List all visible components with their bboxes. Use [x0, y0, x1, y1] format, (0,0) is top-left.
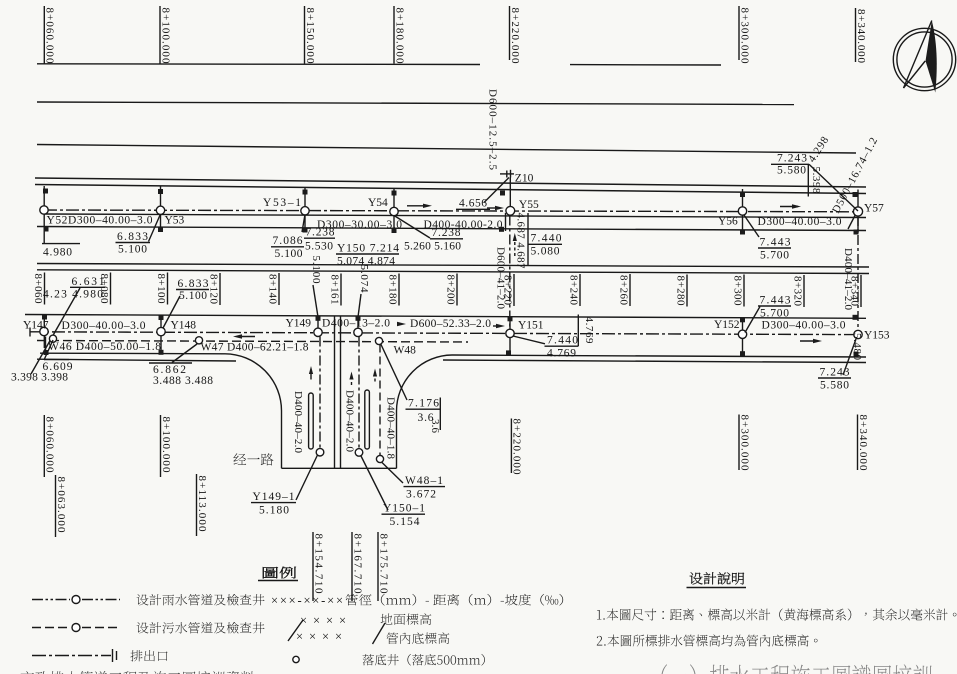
svg-text:D300–40.00–3.0: D300–40.00–3.0: [758, 216, 842, 228]
svg-text:8+300: 8+300: [732, 276, 744, 307]
svg-text:Y55: Y55: [519, 199, 539, 211]
svg-text:6.631: 6.631: [72, 276, 105, 288]
svg-text:5.700: 5.700: [760, 308, 789, 320]
svg-text:5.260 5.160: 5.260 5.160: [404, 241, 461, 253]
svg-text:D400–40–2.0: D400–40–2.0: [343, 390, 355, 453]
svg-text:×××-××-××: ×××-××-××: [271, 594, 343, 608]
svg-text:8+063.000: 8+063.000: [55, 477, 67, 534]
svg-text:3.488 3.488: 3.488 3.488: [153, 375, 213, 387]
svg-text:8+220.000: 8+220.000: [511, 419, 523, 476]
svg-text:Y53–1: Y53–1: [263, 197, 301, 209]
svg-text:Y151: Y151: [518, 320, 544, 332]
svg-text:Y150 7.214: Y150 7.214: [337, 243, 399, 255]
svg-text:5.580: 5.580: [777, 165, 806, 177]
svg-text:4.656: 4.656: [459, 198, 487, 210]
svg-text:7.238: 7.238: [432, 227, 461, 239]
svg-text:W48: W48: [394, 345, 417, 357]
svg-text:8+280: 8+280: [675, 276, 687, 307]
svg-text:7.440: 7.440: [531, 233, 562, 245]
svg-text:Y149–1: Y149–1: [253, 491, 295, 503]
svg-text:D300–40.00–3.0: D300–40.00–3.0: [62, 320, 146, 332]
svg-text:8+100.000: 8+100.000: [159, 8, 171, 65]
svg-text:5.100: 5.100: [275, 248, 303, 260]
svg-text:8+180: 8+180: [387, 275, 399, 306]
svg-text:Y152: Y152: [714, 319, 740, 331]
svg-text:W48–1: W48–1: [405, 475, 443, 487]
svg-text:5.700: 5.700: [760, 250, 789, 262]
svg-text:8+300.000: 8+300.000: [738, 8, 750, 65]
svg-text:Y53: Y53: [165, 215, 185, 227]
svg-text:Y148: Y148: [171, 320, 197, 332]
svg-text:7.086: 7.086: [273, 235, 303, 247]
svg-text:7.243: 7.243: [777, 153, 807, 165]
svg-text:4.980: 4.980: [43, 247, 72, 259]
svg-text:8+340.000: 8+340.000: [855, 9, 867, 64]
svg-text:6.833: 6.833: [178, 278, 209, 290]
svg-text:W46 D400–50.00–1.8: W46 D400–50.00–1.8: [48, 341, 161, 353]
svg-text:4.769: 4.769: [547, 348, 576, 360]
svg-text:D600–52.33–2.0: D600–52.33–2.0: [410, 318, 491, 330]
svg-text:8+220: 8+220: [502, 275, 514, 306]
svg-text:8+120: 8+120: [208, 274, 220, 305]
svg-text:8+150.000: 8+150.000: [304, 8, 316, 65]
svg-text:D400–40–1.8: D400–40–1.8: [384, 397, 396, 460]
svg-text:5.100: 5.100: [118, 244, 147, 256]
svg-text:8+175.710: 8+175.710: [377, 534, 389, 595]
svg-text:D400–40–2.0: D400–40–2.0: [292, 391, 304, 454]
svg-text:D300–40.00–3.0: D300–40.00–3.0: [762, 320, 846, 332]
svg-text:7.238: 7.238: [306, 227, 335, 239]
svg-text:5.074: 5.074: [358, 265, 370, 294]
svg-text:3.672: 3.672: [406, 489, 436, 501]
svg-text:5.154: 5.154: [390, 516, 420, 528]
svg-text:8+154.710: 8+154.710: [312, 534, 324, 595]
svg-text:8+340: 8+340: [849, 276, 861, 307]
svg-text:D400–13–2.0: D400–13–2.0: [322, 318, 390, 330]
svg-text:3.398 3.398: 3.398 3.398: [11, 372, 68, 384]
svg-text:8+140: 8+140: [267, 274, 279, 305]
svg-text:8+100.000: 8+100.000: [160, 417, 172, 474]
svg-text:5.180: 5.180: [259, 505, 289, 517]
svg-text:8+167.710: 8+167.710: [351, 534, 363, 595]
svg-text:Y147: Y147: [23, 320, 49, 332]
svg-text:Y52D300–40.00–3.0: Y52D300–40.00–3.0: [47, 215, 153, 227]
svg-text:Y56: Y56: [718, 216, 738, 228]
svg-text:8+220.000: 8+220.000: [509, 8, 521, 65]
svg-text:Y150–1: Y150–1: [383, 503, 425, 515]
svg-text:5.580: 5.580: [820, 380, 849, 392]
svg-text:7.440: 7.440: [547, 335, 578, 347]
svg-text:Z10: Z10: [515, 173, 534, 185]
svg-text:8+300.000: 8+300.000: [738, 415, 750, 472]
svg-text:8+060.000: 8+060.000: [44, 8, 56, 65]
svg-text:8+180.000: 8+180.000: [393, 8, 405, 65]
svg-text:5.530: 5.530: [305, 241, 333, 253]
svg-text:5.100: 5.100: [310, 256, 322, 285]
svg-text:5.480: 5.480: [851, 333, 863, 361]
svg-text:8+161: 8+161: [329, 275, 341, 305]
svg-text:W47 D400–62.21–1.8: W47 D400–62.21–1.8: [201, 341, 309, 353]
svg-text:6.833: 6.833: [117, 231, 148, 243]
svg-text:8+260: 8+260: [618, 275, 630, 306]
svg-text:7.176: 7.176: [408, 398, 439, 410]
svg-text:5.100: 5.100: [179, 290, 207, 302]
svg-text:D600–12.5–2.5: D600–12.5–2.5: [487, 89, 499, 171]
svg-text:8+100: 8+100: [155, 274, 167, 305]
svg-text:5.398: 5.398: [810, 167, 822, 195]
svg-text:8+340.000: 8+340.000: [857, 415, 869, 472]
svg-text:8+320: 8+320: [792, 276, 804, 307]
svg-text:5.080: 5.080: [531, 246, 560, 258]
svg-text:8+060.000: 8+060.000: [44, 417, 56, 474]
svg-text:7.443: 7.443: [760, 295, 791, 307]
svg-text:7.443: 7.443: [760, 237, 791, 249]
svg-text:8+200: 8+200: [445, 275, 457, 306]
svg-text:Y54: Y54: [368, 197, 388, 209]
svg-text:8+113.000: 8+113.000: [196, 476, 208, 533]
svg-text:3.6: 3.6: [429, 419, 441, 434]
svg-text:Y149: Y149: [286, 318, 312, 330]
svg-text:8+240: 8+240: [568, 275, 580, 306]
svg-text:4.769: 4.769: [583, 317, 595, 345]
svg-text:Y57: Y57: [864, 203, 884, 215]
svg-text:Y153: Y153: [864, 330, 890, 342]
